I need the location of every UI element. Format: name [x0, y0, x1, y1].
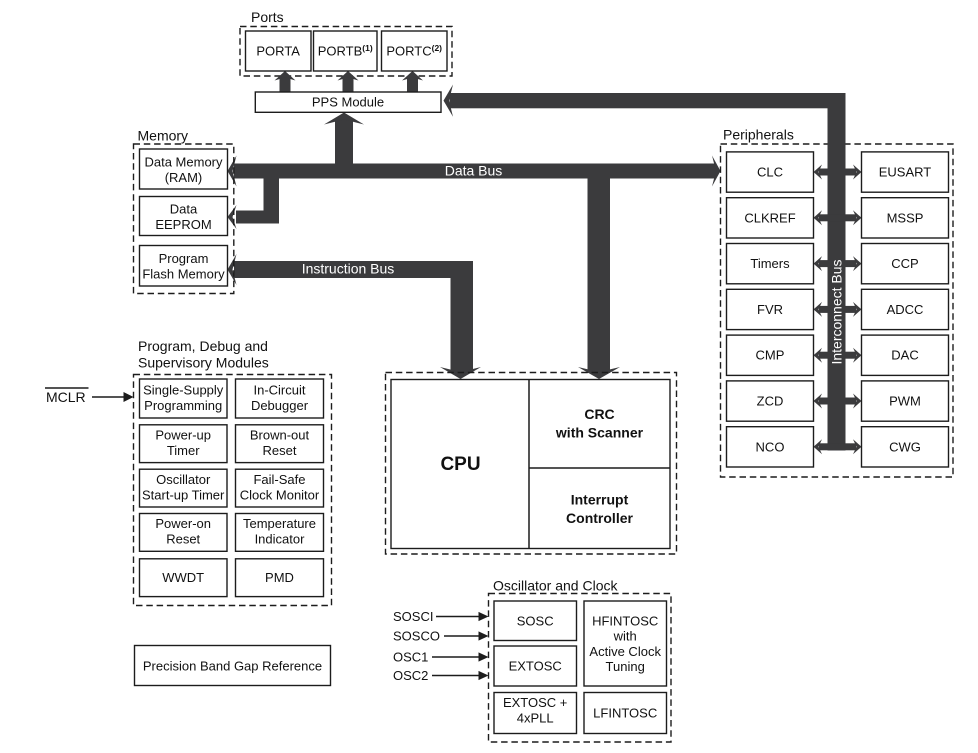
- svg-text:Fail-Safe: Fail-Safe: [253, 472, 305, 487]
- svg-text:Interconnect Bus: Interconnect Bus: [829, 259, 845, 364]
- svg-text:Oscillator and Clock: Oscillator and Clock: [493, 578, 618, 594]
- svg-text:4xPLL: 4xPLL: [517, 711, 554, 726]
- svg-text:Power-on: Power-on: [155, 516, 211, 531]
- svg-text:Indicator: Indicator: [255, 532, 306, 547]
- svg-text:Peripherals: Peripherals: [723, 127, 794, 143]
- svg-text:SOSC: SOSC: [517, 614, 554, 629]
- svg-text:CCP: CCP: [891, 256, 918, 271]
- svg-text:ZCD: ZCD: [757, 394, 784, 409]
- svg-text:Timer: Timer: [167, 443, 200, 458]
- svg-text:MSSP: MSSP: [887, 210, 924, 225]
- svg-text:Start-up Timer: Start-up Timer: [142, 487, 225, 502]
- svg-text:PPS Module: PPS Module: [312, 95, 384, 110]
- svg-text:PWM: PWM: [889, 394, 921, 409]
- svg-text:Controller: Controller: [566, 510, 633, 526]
- svg-text:Single-Supply: Single-Supply: [143, 382, 224, 397]
- svg-text:EXTOSC +: EXTOSC +: [503, 695, 567, 710]
- svg-text:FVR: FVR: [757, 302, 783, 317]
- svg-text:PORTA: PORTA: [256, 44, 300, 59]
- svg-text:Interrupt: Interrupt: [571, 492, 629, 508]
- svg-text:CLKREF: CLKREF: [744, 210, 795, 225]
- svg-text:CPU: CPU: [440, 454, 480, 475]
- svg-text:OSC1: OSC1: [393, 650, 428, 665]
- svg-text:Tuning: Tuning: [606, 659, 645, 674]
- svg-text:with Scanner: with Scanner: [555, 425, 644, 441]
- svg-text:Debugger: Debugger: [251, 398, 309, 413]
- svg-text:In-Circuit: In-Circuit: [253, 382, 305, 397]
- svg-text:EEPROM: EEPROM: [155, 217, 211, 232]
- svg-text:CMP: CMP: [756, 348, 785, 363]
- svg-text:Precision Band Gap Reference: Precision Band Gap Reference: [143, 659, 322, 674]
- svg-text:LFINTOSC: LFINTOSC: [593, 706, 657, 721]
- svg-text:(RAM): (RAM): [165, 170, 203, 185]
- svg-text:Memory: Memory: [138, 128, 189, 144]
- svg-text:CRC: CRC: [584, 406, 614, 422]
- svg-text:DAC: DAC: [891, 348, 918, 363]
- svg-text:Ports: Ports: [251, 9, 284, 25]
- svg-text:EUSART: EUSART: [879, 165, 932, 180]
- svg-text:Programming: Programming: [144, 398, 222, 413]
- svg-text:Power-up: Power-up: [155, 428, 211, 443]
- svg-text:PMD: PMD: [265, 570, 294, 585]
- svg-text:CLC: CLC: [757, 165, 783, 180]
- svg-text:Program: Program: [159, 251, 209, 266]
- svg-text:Active Clock: Active Clock: [589, 644, 661, 659]
- svg-text:SOSCO: SOSCO: [393, 629, 440, 644]
- svg-text:WWDT: WWDT: [162, 570, 204, 585]
- svg-text:Clock Monitor: Clock Monitor: [240, 487, 320, 502]
- svg-text:ADCC: ADCC: [887, 302, 924, 317]
- svg-text:SOSCI: SOSCI: [393, 609, 433, 624]
- svg-text:NCO: NCO: [756, 439, 785, 454]
- svg-text:Brown-out: Brown-out: [250, 428, 310, 443]
- svg-text:OSC2: OSC2: [393, 668, 428, 683]
- svg-text:EXTOSC: EXTOSC: [509, 659, 562, 674]
- svg-text:Reset: Reset: [263, 443, 297, 458]
- svg-text:CWG: CWG: [889, 439, 921, 454]
- svg-text:Temperature: Temperature: [243, 516, 316, 531]
- svg-text:Timers: Timers: [750, 256, 790, 271]
- svg-text:MCLR: MCLR: [46, 389, 86, 405]
- svg-text:Reset: Reset: [166, 532, 200, 547]
- svg-text:HFINTOSC: HFINTOSC: [592, 613, 658, 628]
- svg-text:Data Bus: Data Bus: [445, 163, 503, 179]
- svg-text:Flash Memory: Flash Memory: [142, 267, 225, 282]
- svg-text:with: with: [613, 629, 637, 644]
- svg-text:Instruction Bus: Instruction Bus: [302, 261, 395, 277]
- svg-text:Data: Data: [170, 202, 198, 217]
- svg-text:Data Memory: Data Memory: [144, 155, 223, 170]
- svg-text:Supervisory Modules: Supervisory Modules: [138, 355, 269, 371]
- svg-text:Program, Debug and: Program, Debug and: [138, 338, 268, 354]
- svg-text:Oscillator: Oscillator: [156, 472, 211, 487]
